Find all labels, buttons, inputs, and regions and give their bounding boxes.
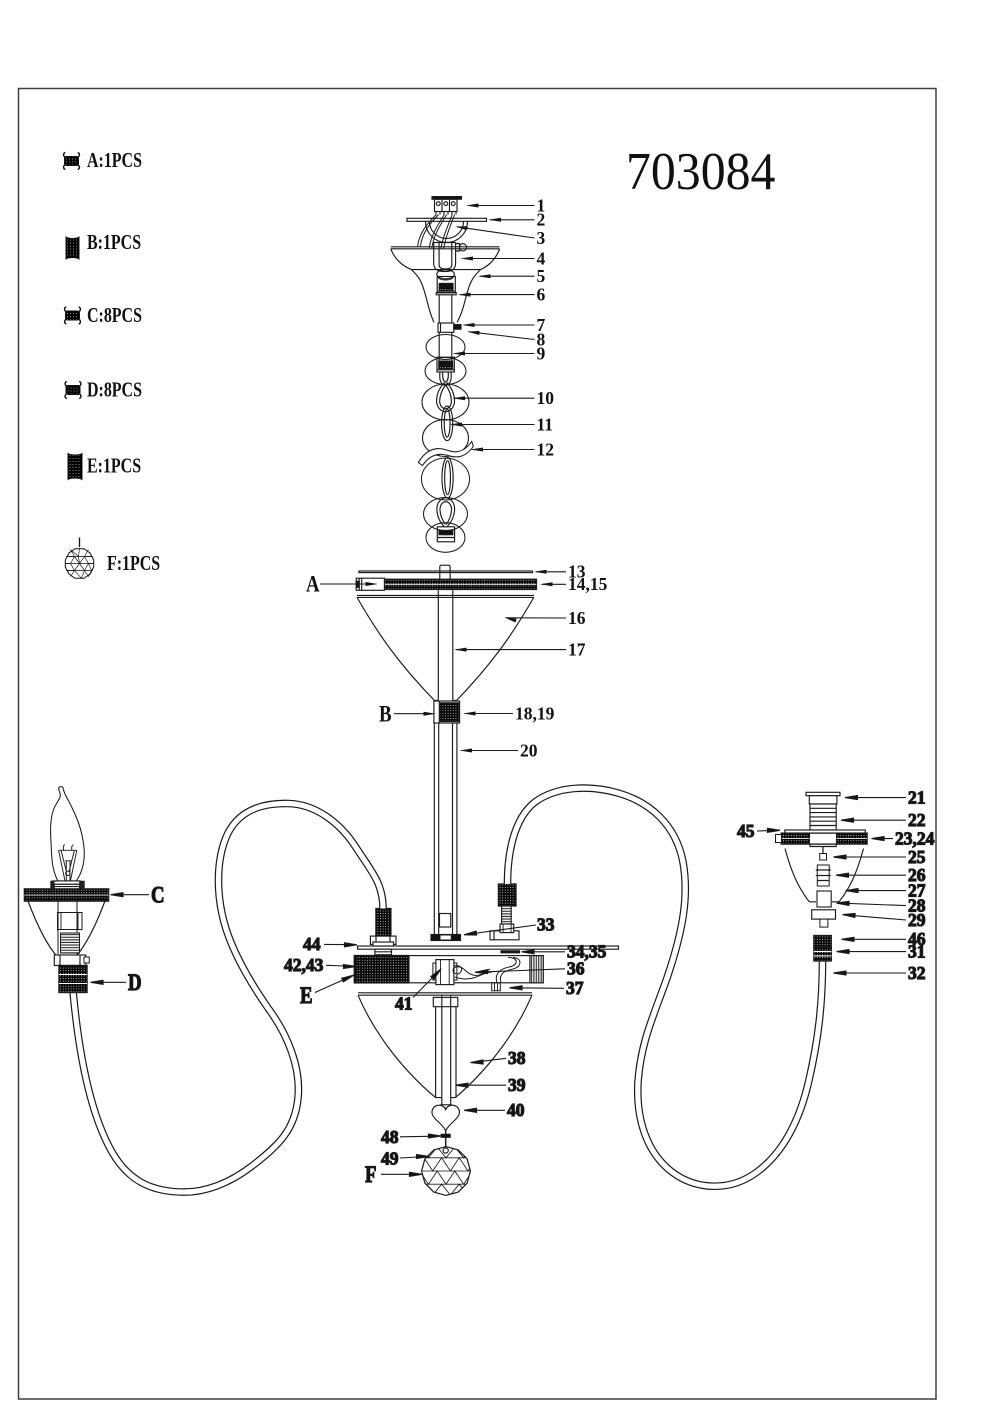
svg-text:39: 39: [508, 1075, 526, 1095]
svg-text:E:1PCS: E:1PCS: [87, 454, 141, 478]
svg-text:A: A: [306, 571, 320, 598]
svg-text:11: 11: [537, 414, 554, 434]
svg-text:22: 22: [908, 810, 926, 830]
svg-text:23,24: 23,24: [895, 828, 935, 848]
svg-text:14,15: 14,15: [568, 574, 608, 594]
svg-text:45: 45: [737, 821, 755, 841]
svg-text:37: 37: [566, 978, 584, 998]
svg-text:B:1PCS: B:1PCS: [87, 231, 141, 255]
svg-text:A:1PCS: A:1PCS: [87, 149, 142, 173]
svg-text:12: 12: [537, 439, 555, 459]
svg-text:42,43: 42,43: [284, 955, 324, 975]
svg-text:49: 49: [381, 1148, 399, 1168]
svg-text:D:8PCS: D:8PCS: [87, 378, 142, 402]
svg-text:C: C: [151, 882, 165, 909]
svg-text:F: F: [365, 1161, 376, 1188]
svg-text:D: D: [128, 969, 142, 996]
svg-text:5: 5: [537, 266, 546, 286]
svg-text:44: 44: [303, 934, 321, 954]
svg-text:18,19: 18,19: [515, 703, 555, 723]
svg-text:10: 10: [537, 388, 555, 408]
svg-text:C:8PCS: C:8PCS: [87, 304, 142, 328]
svg-text:41: 41: [395, 994, 413, 1014]
svg-text:25: 25: [908, 847, 926, 867]
svg-text:16: 16: [568, 608, 586, 628]
svg-text:31: 31: [908, 941, 926, 961]
svg-text:29: 29: [908, 910, 926, 930]
svg-text:3: 3: [537, 228, 546, 248]
svg-text:40: 40: [507, 1100, 525, 1120]
svg-text:E: E: [300, 982, 313, 1009]
svg-text:36: 36: [567, 959, 585, 979]
svg-text:33: 33: [537, 915, 555, 935]
svg-text:17: 17: [568, 639, 586, 659]
svg-text:703084: 703084: [626, 143, 775, 202]
svg-text:48: 48: [381, 1127, 399, 1147]
svg-text:32: 32: [908, 963, 926, 983]
svg-text:21: 21: [908, 787, 926, 807]
svg-text:9: 9: [537, 343, 546, 363]
svg-text:B: B: [379, 701, 392, 728]
svg-text:2: 2: [537, 210, 546, 230]
svg-text:6: 6: [537, 284, 546, 304]
svg-text:38: 38: [508, 1048, 526, 1068]
svg-text:F:1PCS: F:1PCS: [107, 552, 160, 576]
svg-text:20: 20: [520, 740, 538, 760]
